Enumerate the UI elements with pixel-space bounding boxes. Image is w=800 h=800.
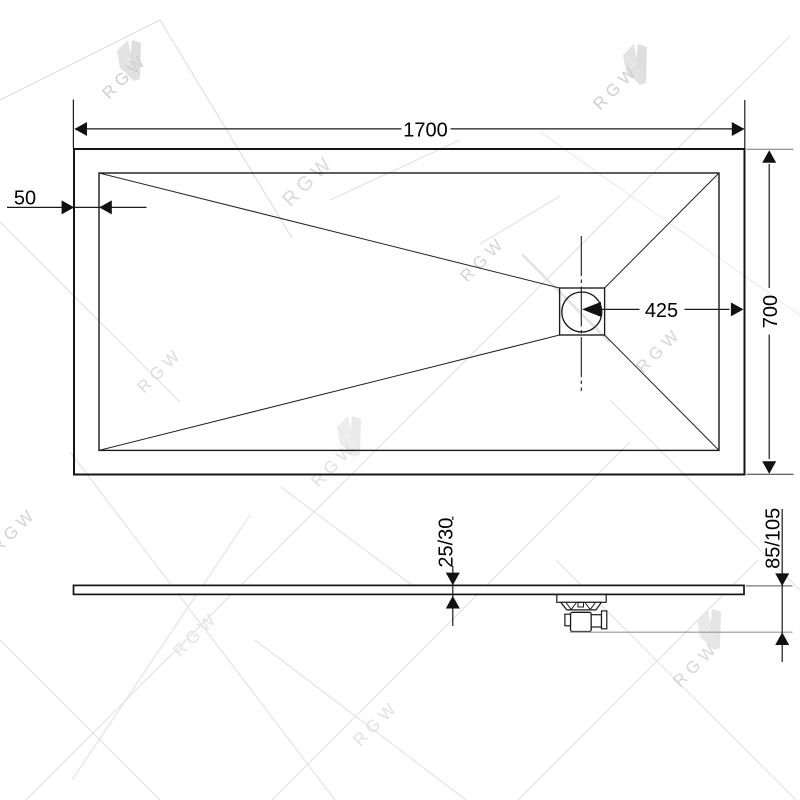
svg-text:85/105: 85/105 (763, 508, 785, 569)
svg-text:1700: 1700 (403, 120, 448, 142)
svg-text:700: 700 (760, 295, 782, 328)
svg-text:50: 50 (14, 188, 36, 210)
svg-text:425: 425 (645, 300, 678, 322)
svg-text:25/30: 25/30 (436, 518, 458, 568)
